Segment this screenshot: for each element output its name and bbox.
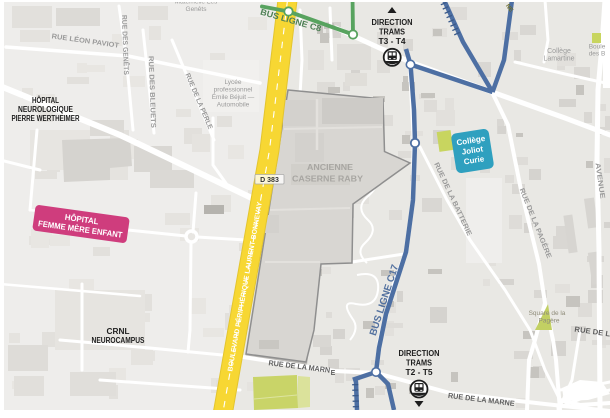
svg-text:Genêts: Genêts: [186, 6, 208, 13]
svg-text:Lamartine: Lamartine: [543, 56, 574, 63]
svg-text:Square de la: Square de la: [529, 310, 566, 317]
svg-text:Collège: Collège: [547, 48, 571, 55]
svg-text:TRAMS: TRAMS: [379, 28, 406, 37]
svg-text:DIRECTION: DIRECTION: [372, 18, 413, 27]
svg-text:NEUROCAMPUS: NEUROCAMPUS: [92, 336, 146, 345]
svg-text:T2 - T5: T2 - T5: [406, 368, 434, 377]
svg-text:professionnel: professionnel: [214, 87, 253, 94]
svg-text:Lycée: Lycée: [224, 79, 241, 86]
svg-text:NEUROLOGIQUE: NEUROLOGIQUE: [18, 105, 74, 114]
svg-text:PIERRE WERTHEIMER: PIERRE WERTHEIMER: [12, 114, 80, 123]
svg-text:CRNL: CRNL: [107, 327, 130, 336]
svg-text:Pagère: Pagère: [539, 318, 560, 325]
svg-text:ANCIENNE: ANCIENNE: [307, 162, 353, 172]
svg-text:TRAMS: TRAMS: [406, 359, 433, 368]
svg-text:Boule: Boule: [589, 44, 606, 51]
svg-text:Automobile: Automobile: [217, 102, 250, 109]
svg-text:DIRECTION: DIRECTION: [399, 349, 440, 358]
svg-text:E: E: [331, 370, 336, 377]
svg-text:HÔPITAL: HÔPITAL: [32, 96, 59, 105]
svg-text:des B: des B: [589, 51, 606, 58]
svg-text:T3 - T4: T3 - T4: [379, 37, 407, 46]
svg-text:D 383: D 383: [260, 177, 279, 184]
svg-text:CASERNE RABY: CASERNE RABY: [292, 174, 363, 184]
svg-text:Émile Béjuit —: Émile Béjuit —: [212, 92, 255, 101]
